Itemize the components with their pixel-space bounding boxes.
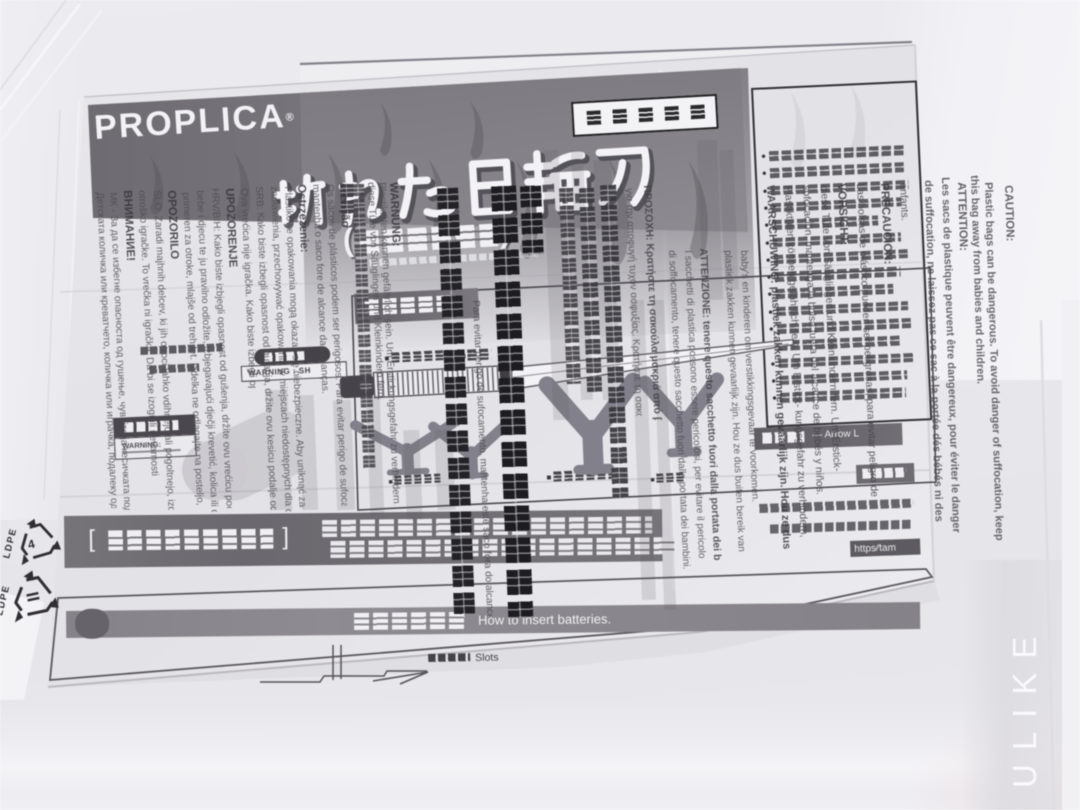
svg-text:LDPE: LDPE: [1, 527, 19, 560]
svg-text:4: 4: [26, 537, 36, 552]
svg-text:LDPE: LDPE: [0, 584, 12, 617]
